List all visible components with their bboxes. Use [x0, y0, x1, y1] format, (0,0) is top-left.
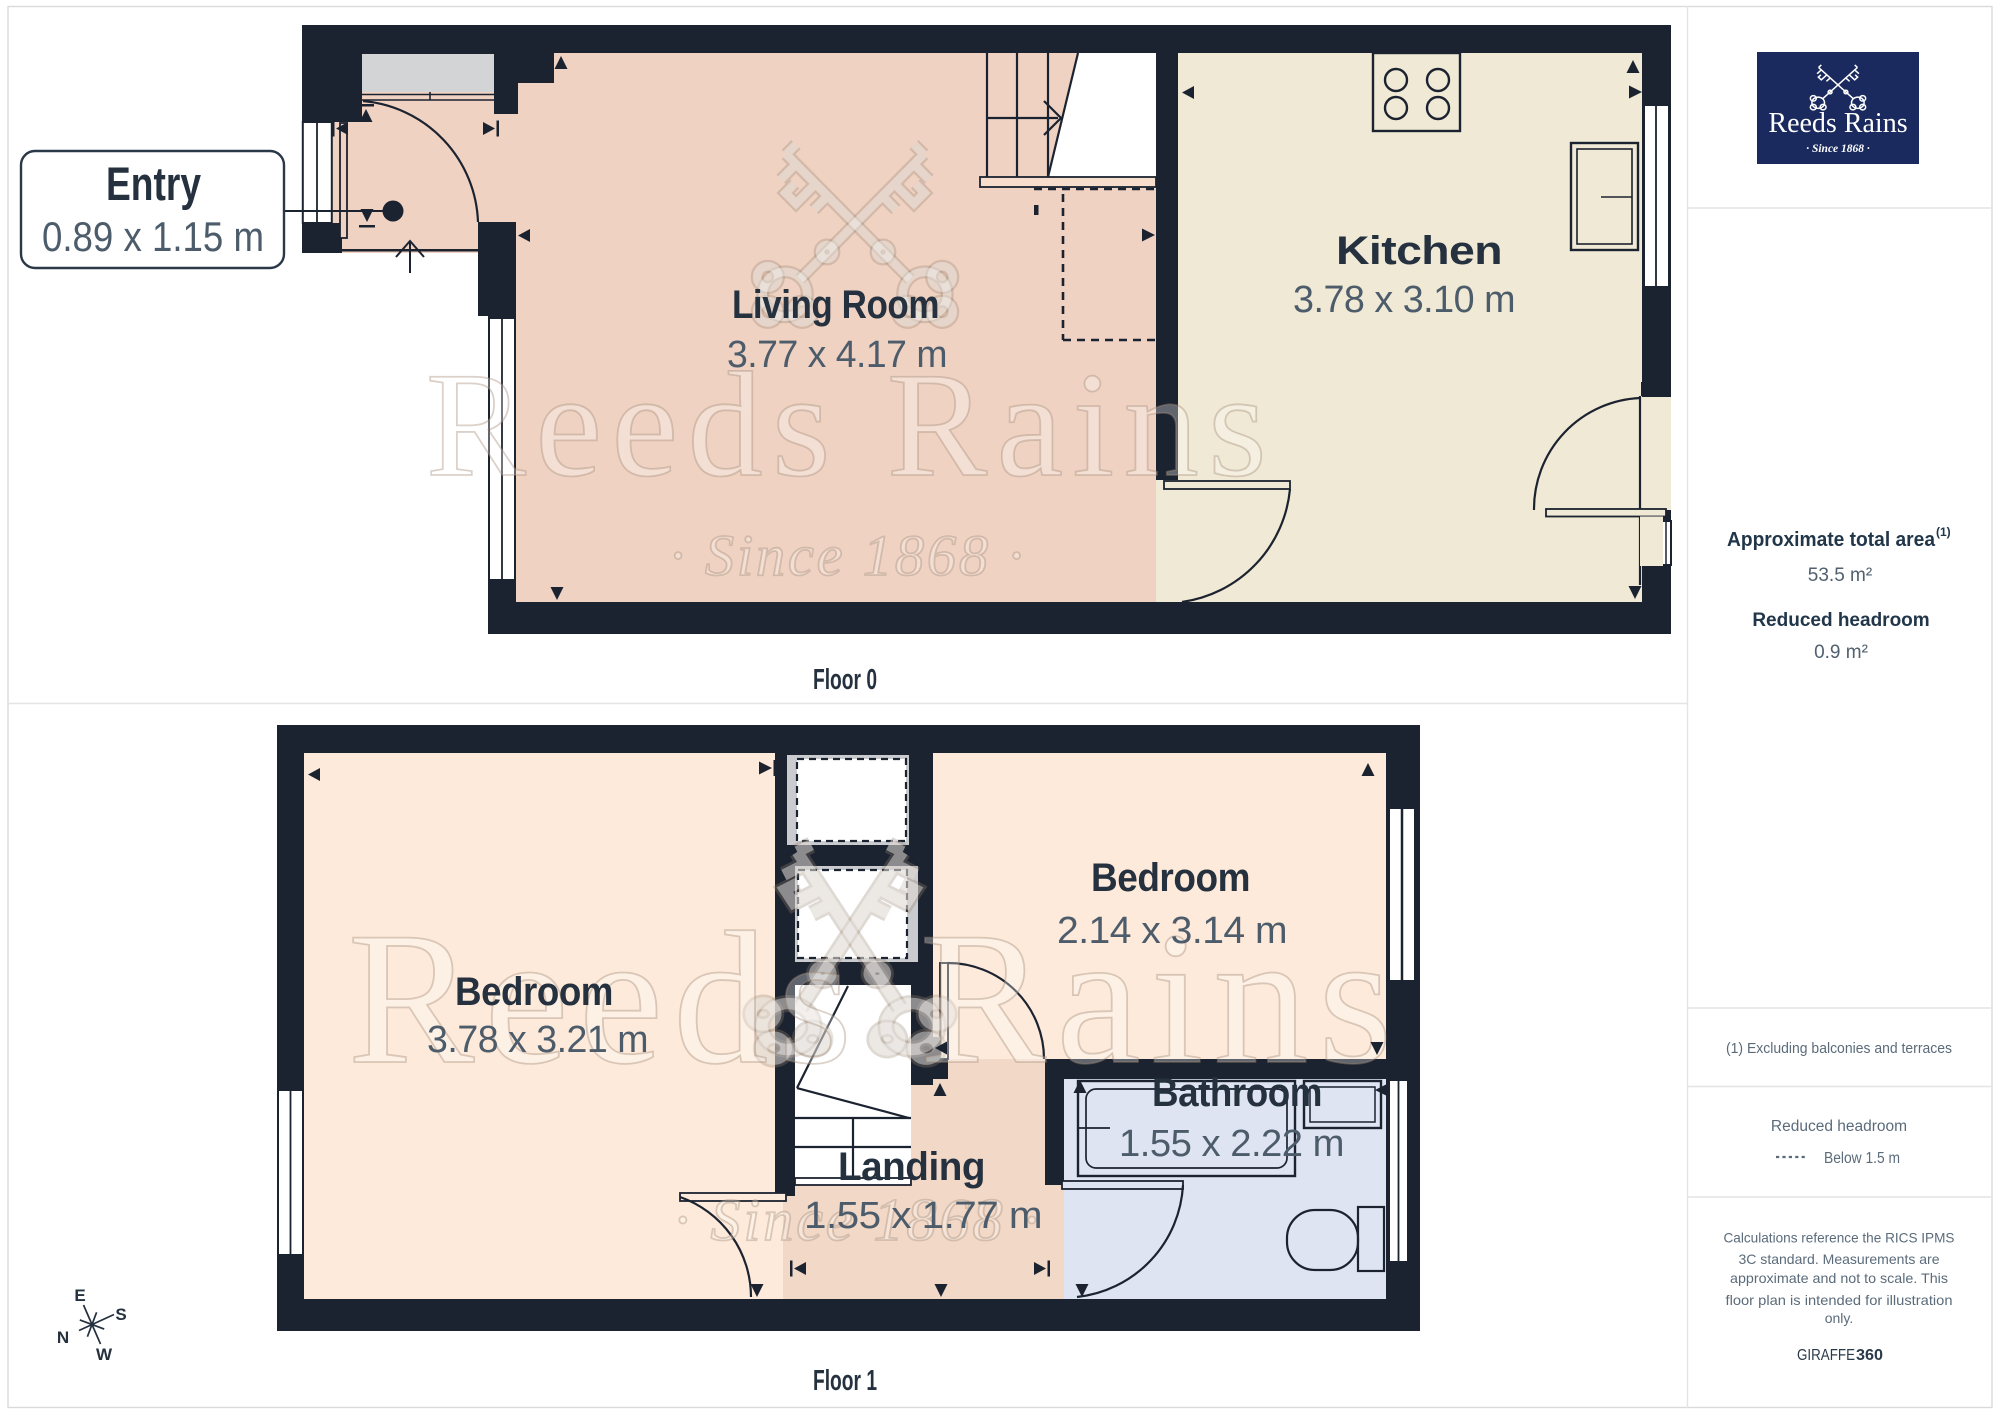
- svg-text:floor plan is intended for ill: floor plan is intended for illustration: [1726, 1292, 1953, 1308]
- svg-text:0.89 x 1.15 m: 0.89 x 1.15 m: [42, 213, 264, 260]
- svg-text:Calculations reference the RIC: Calculations reference the RICS IPMS: [1724, 1230, 1955, 1246]
- svg-text:E: E: [74, 1286, 85, 1305]
- svg-text:Bedroom: Bedroom: [455, 970, 613, 1014]
- svg-text:3.78 x 3.10 m: 3.78 x 3.10 m: [1293, 279, 1515, 321]
- svg-text:3C standard. Measurements are: 3C standard. Measurements are: [1739, 1251, 1940, 1267]
- svg-text:360: 360: [1856, 1347, 1883, 1364]
- svg-text:Entry: Entry: [106, 157, 201, 210]
- svg-text:3.77 x 4.17 m: 3.77 x 4.17 m: [727, 334, 947, 376]
- svg-text:· Since 1868 ·: · Since 1868 ·: [670, 523, 1026, 588]
- svg-text:Bathroom: Bathroom: [1152, 1071, 1322, 1115]
- svg-text:S: S: [115, 1305, 126, 1324]
- svg-text:Reduced headroom: Reduced headroom: [1752, 610, 1929, 631]
- svg-text:N: N: [57, 1328, 69, 1347]
- svg-text:1.55 x 1.77 m: 1.55 x 1.77 m: [804, 1195, 1042, 1237]
- svg-text:W: W: [96, 1345, 113, 1364]
- svg-text:0.9 m²: 0.9 m²: [1814, 642, 1868, 663]
- svg-text:Reduced headroom: Reduced headroom: [1771, 1118, 1907, 1135]
- svg-text:Living Room: Living Room: [732, 283, 939, 327]
- svg-text:2.14 x 3.14 m: 2.14 x 3.14 m: [1057, 910, 1287, 952]
- svg-text:Approximate total area: Approximate total area: [1727, 529, 1936, 551]
- svg-text:only.: only.: [1825, 1310, 1854, 1326]
- svg-text:(1): (1): [1936, 525, 1951, 539]
- svg-text:3.78 x 3.21 m: 3.78 x 3.21 m: [427, 1019, 648, 1061]
- svg-text:1.55 x 2.22 m: 1.55 x 2.22 m: [1119, 1123, 1344, 1165]
- svg-text:Reeds Rains: Reeds Rains: [1768, 108, 1907, 139]
- svg-text:Floor 0: Floor 0: [813, 664, 877, 696]
- svg-text:Kitchen: Kitchen: [1336, 229, 1502, 273]
- svg-text:Below 1.5 m: Below 1.5 m: [1824, 1150, 1900, 1167]
- svg-text:(1) Excluding balconies and te: (1) Excluding balconies and terraces: [1726, 1041, 1952, 1057]
- svg-text:Floor 1: Floor 1: [813, 1365, 877, 1397]
- svg-text:· Since 1868 ·: · Since 1868 ·: [1806, 143, 1870, 155]
- svg-text:approximate and not to scale.: approximate and not to scale. This: [1730, 1270, 1948, 1286]
- svg-text:Landing: Landing: [838, 1145, 985, 1189]
- svg-text:Bedroom: Bedroom: [1091, 856, 1250, 900]
- svg-text:53.5 m²: 53.5 m²: [1808, 565, 1872, 586]
- svg-text:GIRAFFE: GIRAFFE: [1797, 1347, 1855, 1364]
